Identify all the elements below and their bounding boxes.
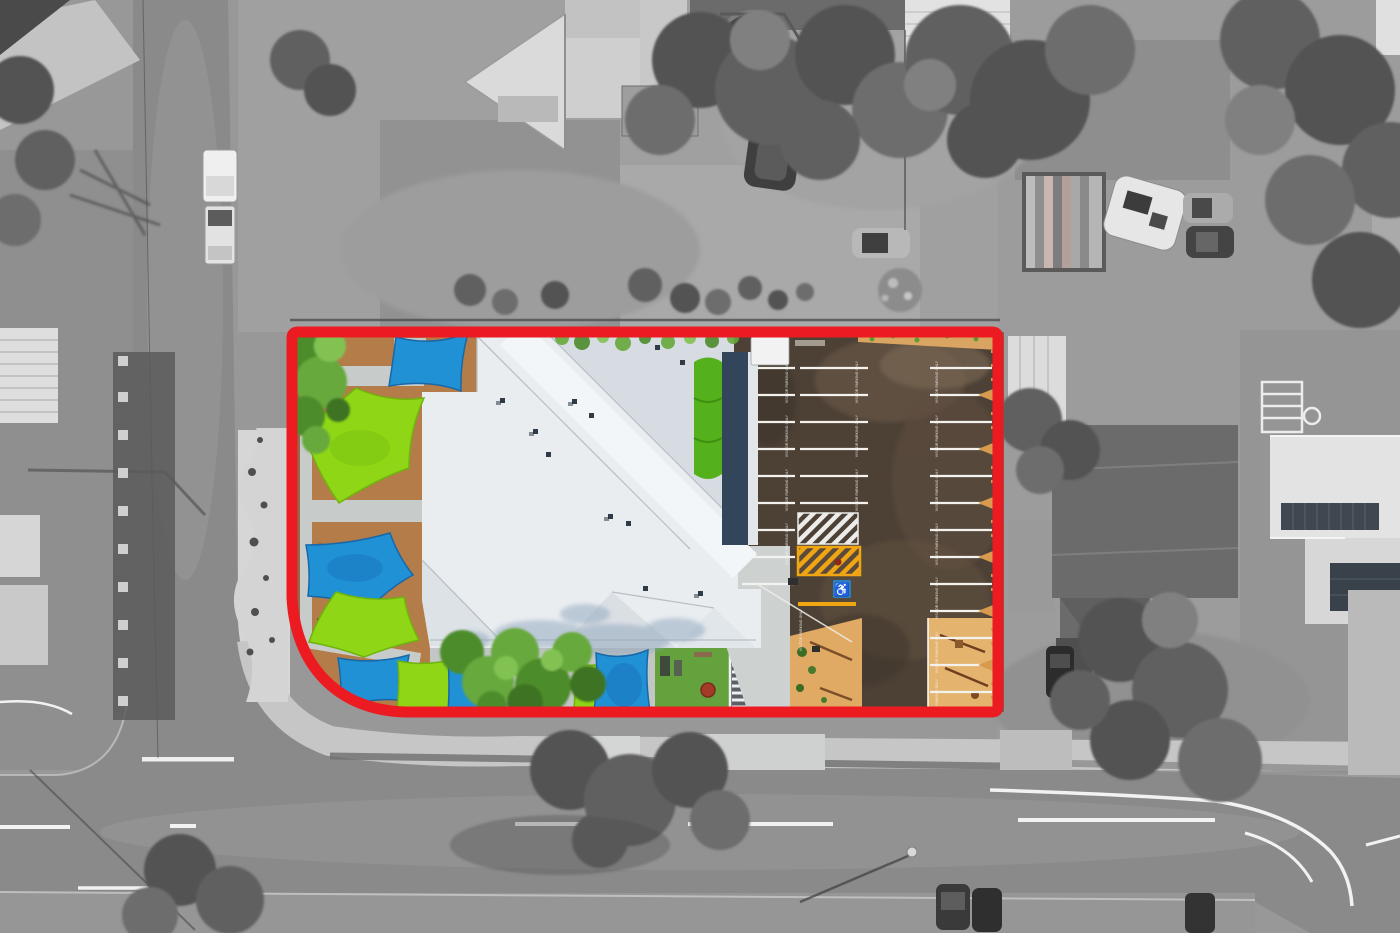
svg-text:VISITOR PARKING ONLY: VISITOR PARKING ONLY xyxy=(855,468,859,511)
hatch-marker xyxy=(835,559,842,566)
svg-text:VISITOR PARKING ONLY: VISITOR PARKING ONLY xyxy=(785,360,789,403)
svg-text:VISITOR PARKING ONLY: VISITOR PARKING ONLY xyxy=(855,414,859,457)
pedestrian-crossing xyxy=(798,513,858,544)
svg-text:VISITOR PARKING ONLY: VISITOR PARKING ONLY xyxy=(935,630,939,673)
solar-array xyxy=(1281,503,1379,530)
parked-car-right xyxy=(1185,893,1215,933)
svg-text:VISITOR PARKING ONLY: VISITOR PARKING ONLY xyxy=(855,360,859,403)
svg-text:VISITOR PARKING ONLY: VISITOR PARKING ONLY xyxy=(785,522,789,565)
svg-text:VISITOR PARKING ONLY: VISITOR PARKING ONLY xyxy=(935,468,939,511)
carport-walkway xyxy=(113,352,175,720)
white-van xyxy=(751,337,789,365)
svg-text:VISITOR PARKING ONLY: VISITOR PARKING ONLY xyxy=(799,608,803,651)
svg-text:VISITOR PARKING ONLY: VISITOR PARKING ONLY xyxy=(785,414,789,457)
aerial-photo: Top-down real-estate aerial photo. Surro… xyxy=(0,0,1400,933)
property-colour-area: VISITOR PARKING ONLY VISITOR PARKING ONL… xyxy=(278,330,1008,721)
parked-car-bottom-2 xyxy=(972,888,1002,932)
svg-text:VISITOR PARKING ONLY: VISITOR PARKING ONLY xyxy=(935,576,939,619)
left-small-roof xyxy=(0,515,40,577)
svg-text:VISITOR PARKING ONLY: VISITOR PARKING ONLY xyxy=(935,360,939,403)
play-wheel xyxy=(701,683,715,697)
yellow-hatch-zone xyxy=(798,547,860,575)
svg-text:VISITOR PARKING ONLY: VISITOR PARKING ONLY xyxy=(935,522,939,565)
give-way-line xyxy=(142,757,234,762)
navy-awning xyxy=(722,352,748,545)
yellow-line xyxy=(798,602,856,606)
white-ute xyxy=(203,150,237,264)
green-canopy xyxy=(694,358,722,480)
scene-svg: Top-down real-estate aerial photo. Surro… xyxy=(0,0,1400,933)
striped-shed xyxy=(1022,172,1106,272)
sail-blue-top xyxy=(389,333,468,391)
svg-text:VISITOR PARKING ONLY: VISITOR PARKING ONLY xyxy=(785,468,789,511)
neighbor-driveway xyxy=(1000,730,1072,770)
right-driveway xyxy=(1348,590,1400,775)
svg-text:VISITOR PARKING ONLY: VISITOR PARKING ONLY xyxy=(935,414,939,457)
left-small-roof-2 xyxy=(0,585,48,665)
wheelchair-icon: ♿ xyxy=(834,582,850,597)
